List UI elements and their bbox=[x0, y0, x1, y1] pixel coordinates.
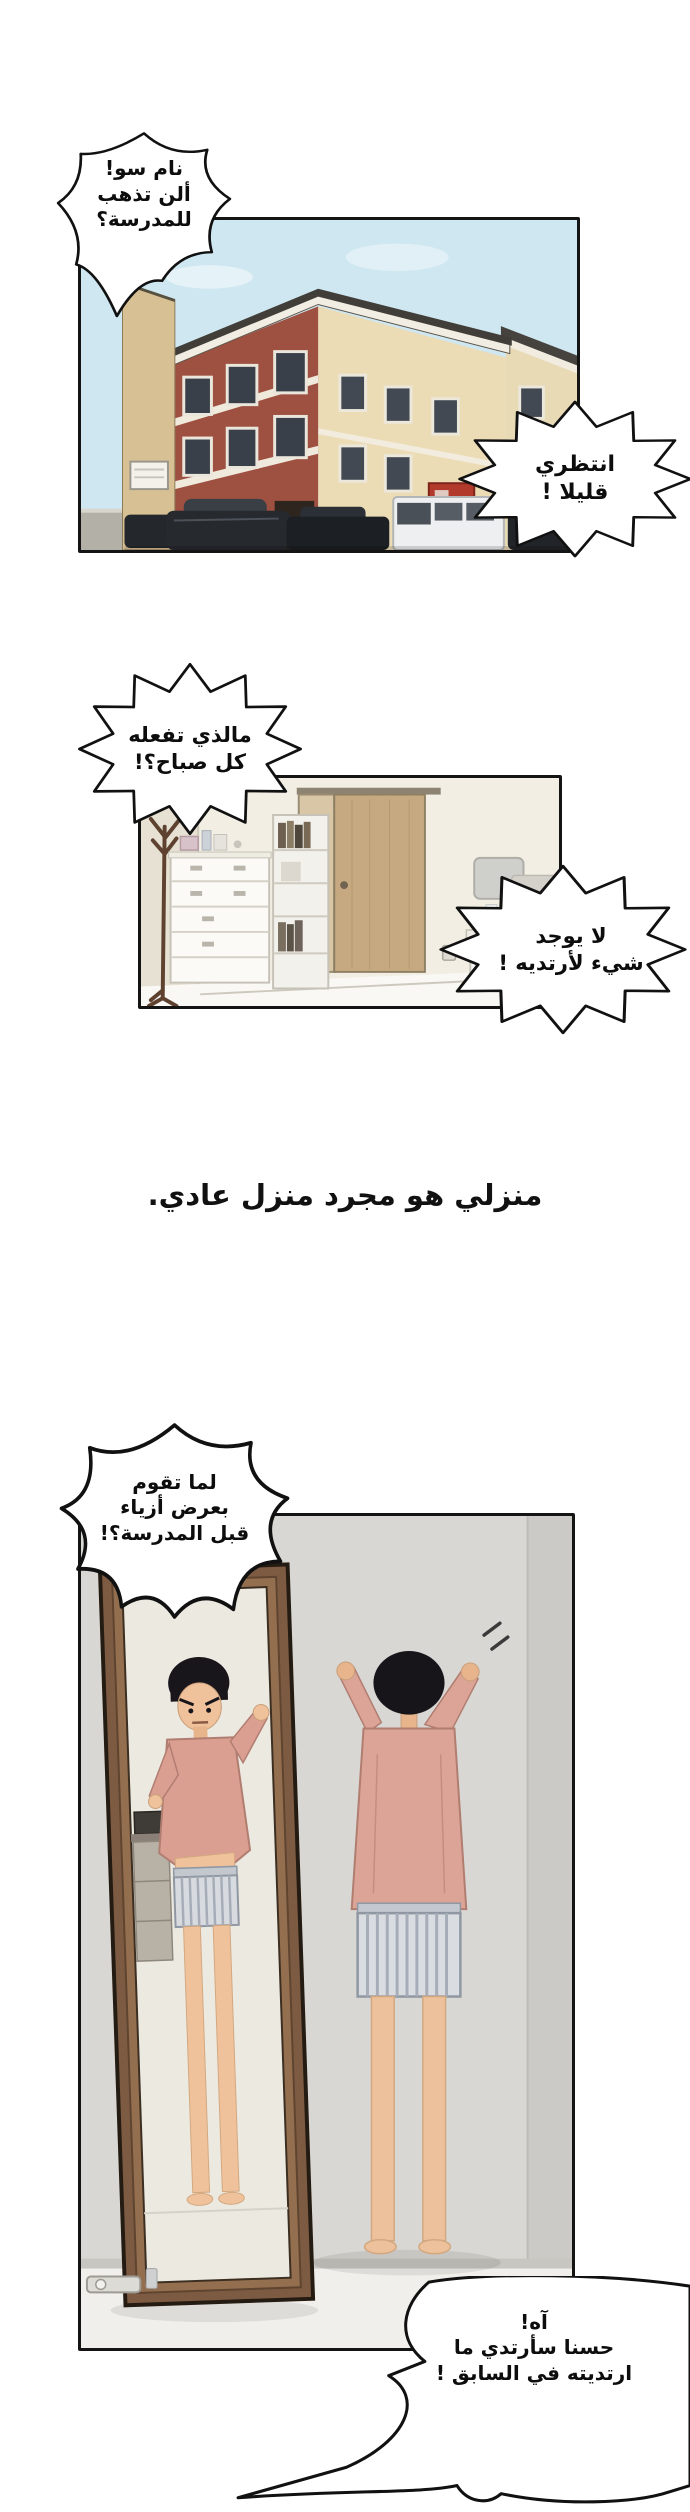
bubble-line: حسنا سأرتدي ما bbox=[454, 2335, 614, 2361]
bubble-line: ارتديته في السابق ! bbox=[436, 2361, 632, 2387]
bubble-line: مالذي تفعله bbox=[128, 722, 252, 749]
parked-car bbox=[287, 517, 390, 550]
drawer-handle bbox=[202, 916, 214, 921]
bubble-line: ألن تذهب bbox=[97, 182, 190, 208]
drawer-handle bbox=[202, 942, 214, 947]
speech-bubble-1: نام سو! ألن تذهب للمدرسة؟ bbox=[50, 126, 238, 321]
parked-car bbox=[166, 511, 290, 550]
bubble-line: نام سو! bbox=[105, 156, 183, 182]
striped-boxers bbox=[358, 1913, 461, 1996]
full-length-mirror bbox=[100, 1564, 313, 2305]
speech-bubble-2: انتظري قليلا ! bbox=[455, 398, 690, 560]
window bbox=[227, 365, 257, 404]
window bbox=[385, 456, 411, 491]
bottle bbox=[146, 2269, 157, 2289]
drawer-handle bbox=[190, 866, 202, 871]
window bbox=[184, 438, 212, 475]
window bbox=[275, 352, 307, 393]
window bbox=[385, 387, 411, 422]
window bbox=[184, 377, 212, 414]
bubble-line: للمدرسة؟ bbox=[96, 207, 192, 233]
cloud bbox=[346, 244, 449, 272]
bubble-line: كل صباح؟! bbox=[134, 749, 246, 776]
window bbox=[227, 428, 257, 467]
books bbox=[278, 922, 286, 951]
bubble-line: لا يوجد bbox=[535, 923, 606, 950]
drawer-handle bbox=[190, 891, 202, 896]
speech-bubble-6: آه! حسنا سأرتدي ما ارتديته في السابق ! bbox=[228, 2276, 690, 2512]
window bbox=[340, 375, 366, 410]
door-track bbox=[297, 788, 441, 795]
bubble-line: آه! bbox=[520, 2310, 548, 2336]
panel-mirror-scene bbox=[78, 1513, 575, 2351]
ac-unit bbox=[130, 462, 168, 490]
speech-bubble-4: لا يوجد شيء لأرتديه ! bbox=[436, 862, 690, 1037]
bubble-line: قليلا ! bbox=[542, 479, 609, 507]
window bbox=[275, 416, 307, 457]
bathroom-scale bbox=[87, 2277, 140, 2293]
hair bbox=[373, 1651, 444, 1715]
foot bbox=[365, 2240, 397, 2254]
speech-bubble-3: مالذي تفعله كل صباح؟! bbox=[75, 660, 305, 838]
speech-bubble-5: لما تقوم بعرض أزياء قبل المدرسة؟! bbox=[52, 1415, 297, 1627]
foreground-wall bbox=[122, 283, 174, 550]
neck bbox=[401, 1713, 417, 1729]
drawer-handle bbox=[234, 891, 246, 896]
leg bbox=[371, 1997, 394, 2241]
foot bbox=[419, 2240, 451, 2254]
shirt-back bbox=[352, 1728, 467, 1909]
bubble-line: قبل المدرسة؟! bbox=[100, 1521, 249, 1547]
bubble-line: شيء لأرتديه ! bbox=[498, 950, 643, 977]
mirror-scene-illustration bbox=[81, 1516, 572, 2348]
bubble-line: انتظري bbox=[535, 451, 615, 479]
waistband bbox=[358, 1903, 461, 1913]
wooden-door bbox=[334, 795, 425, 972]
box-on-dresser bbox=[180, 836, 198, 850]
bubble-line: بعرض أزياء bbox=[120, 1495, 229, 1521]
drawer-handle bbox=[234, 866, 246, 871]
leg bbox=[423, 1997, 446, 2241]
window bbox=[340, 446, 366, 481]
door-handle bbox=[340, 881, 348, 889]
comic-page: { "speech": { "bubble1": { "lines": ["نا… bbox=[0, 0, 690, 2512]
bubble-line: لما تقوم bbox=[132, 1470, 217, 1496]
narration-text: منزلي هو مجرد منزل عادي. bbox=[0, 1178, 690, 1212]
dresser bbox=[171, 856, 270, 983]
